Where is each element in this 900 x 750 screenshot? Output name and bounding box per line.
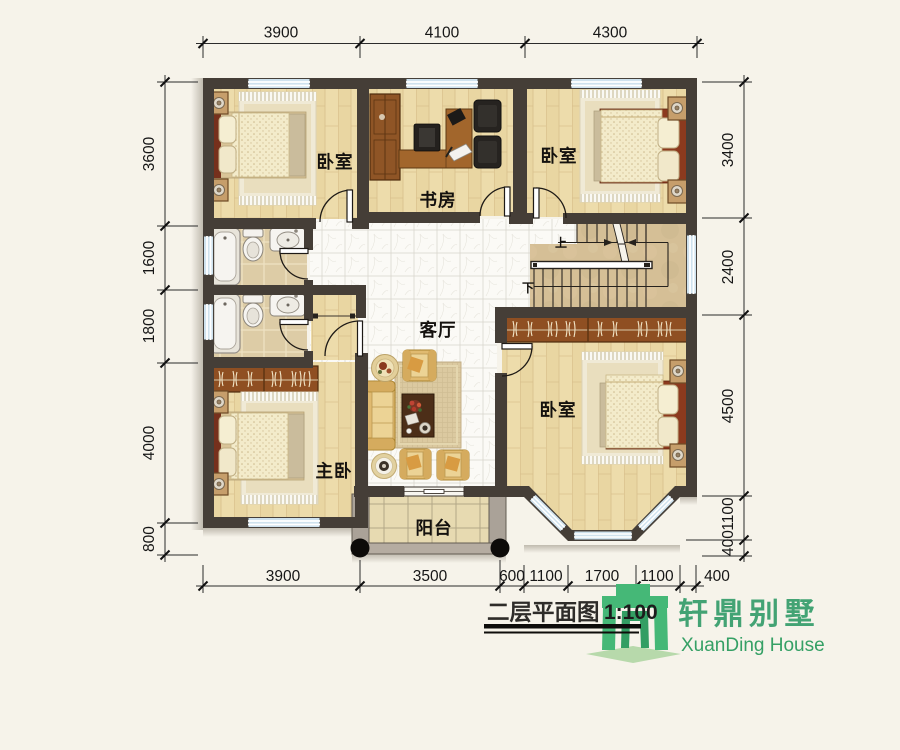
svg-text:1100: 1100 (529, 568, 563, 585)
svg-text:客厅: 客厅 (419, 320, 457, 340)
svg-text:卧室: 卧室 (317, 152, 354, 172)
svg-text:主卧: 主卧 (316, 461, 353, 481)
svg-text:阳台: 阳台 (416, 518, 453, 538)
svg-text:书房: 书房 (420, 190, 457, 210)
svg-text:4100: 4100 (425, 25, 460, 42)
svg-text:2400: 2400 (720, 249, 737, 284)
svg-text:400: 400 (704, 568, 730, 585)
svg-text:XuanDing House: XuanDing House (681, 635, 825, 656)
svg-text:卧室: 卧室 (541, 146, 578, 166)
svg-text:轩鼎别墅: 轩鼎别墅 (678, 598, 820, 631)
svg-text:4300: 4300 (593, 25, 628, 42)
svg-text:1800: 1800 (141, 308, 158, 343)
svg-text:600: 600 (499, 568, 525, 585)
svg-text:3600: 3600 (141, 136, 158, 171)
svg-text:1100: 1100 (640, 568, 674, 585)
svg-text:1100: 1100 (720, 497, 737, 531)
svg-text:二层平面图: 二层平面图 (487, 600, 600, 625)
svg-text:1600: 1600 (141, 240, 158, 275)
svg-text:3500: 3500 (413, 568, 448, 585)
svg-text:800: 800 (141, 526, 158, 552)
svg-text:3400: 3400 (720, 132, 737, 167)
svg-text:3900: 3900 (266, 568, 301, 585)
svg-text:卧室: 卧室 (540, 400, 577, 420)
svg-text:上: 上 (555, 235, 567, 250)
svg-text:1700: 1700 (585, 568, 620, 585)
svg-text:4000: 4000 (141, 425, 158, 460)
svg-text:400: 400 (720, 530, 737, 556)
svg-text:3900: 3900 (264, 25, 299, 42)
svg-text:下: 下 (522, 281, 534, 295)
svg-text:4500: 4500 (720, 388, 737, 423)
svg-text:1:100: 1:100 (604, 601, 658, 624)
